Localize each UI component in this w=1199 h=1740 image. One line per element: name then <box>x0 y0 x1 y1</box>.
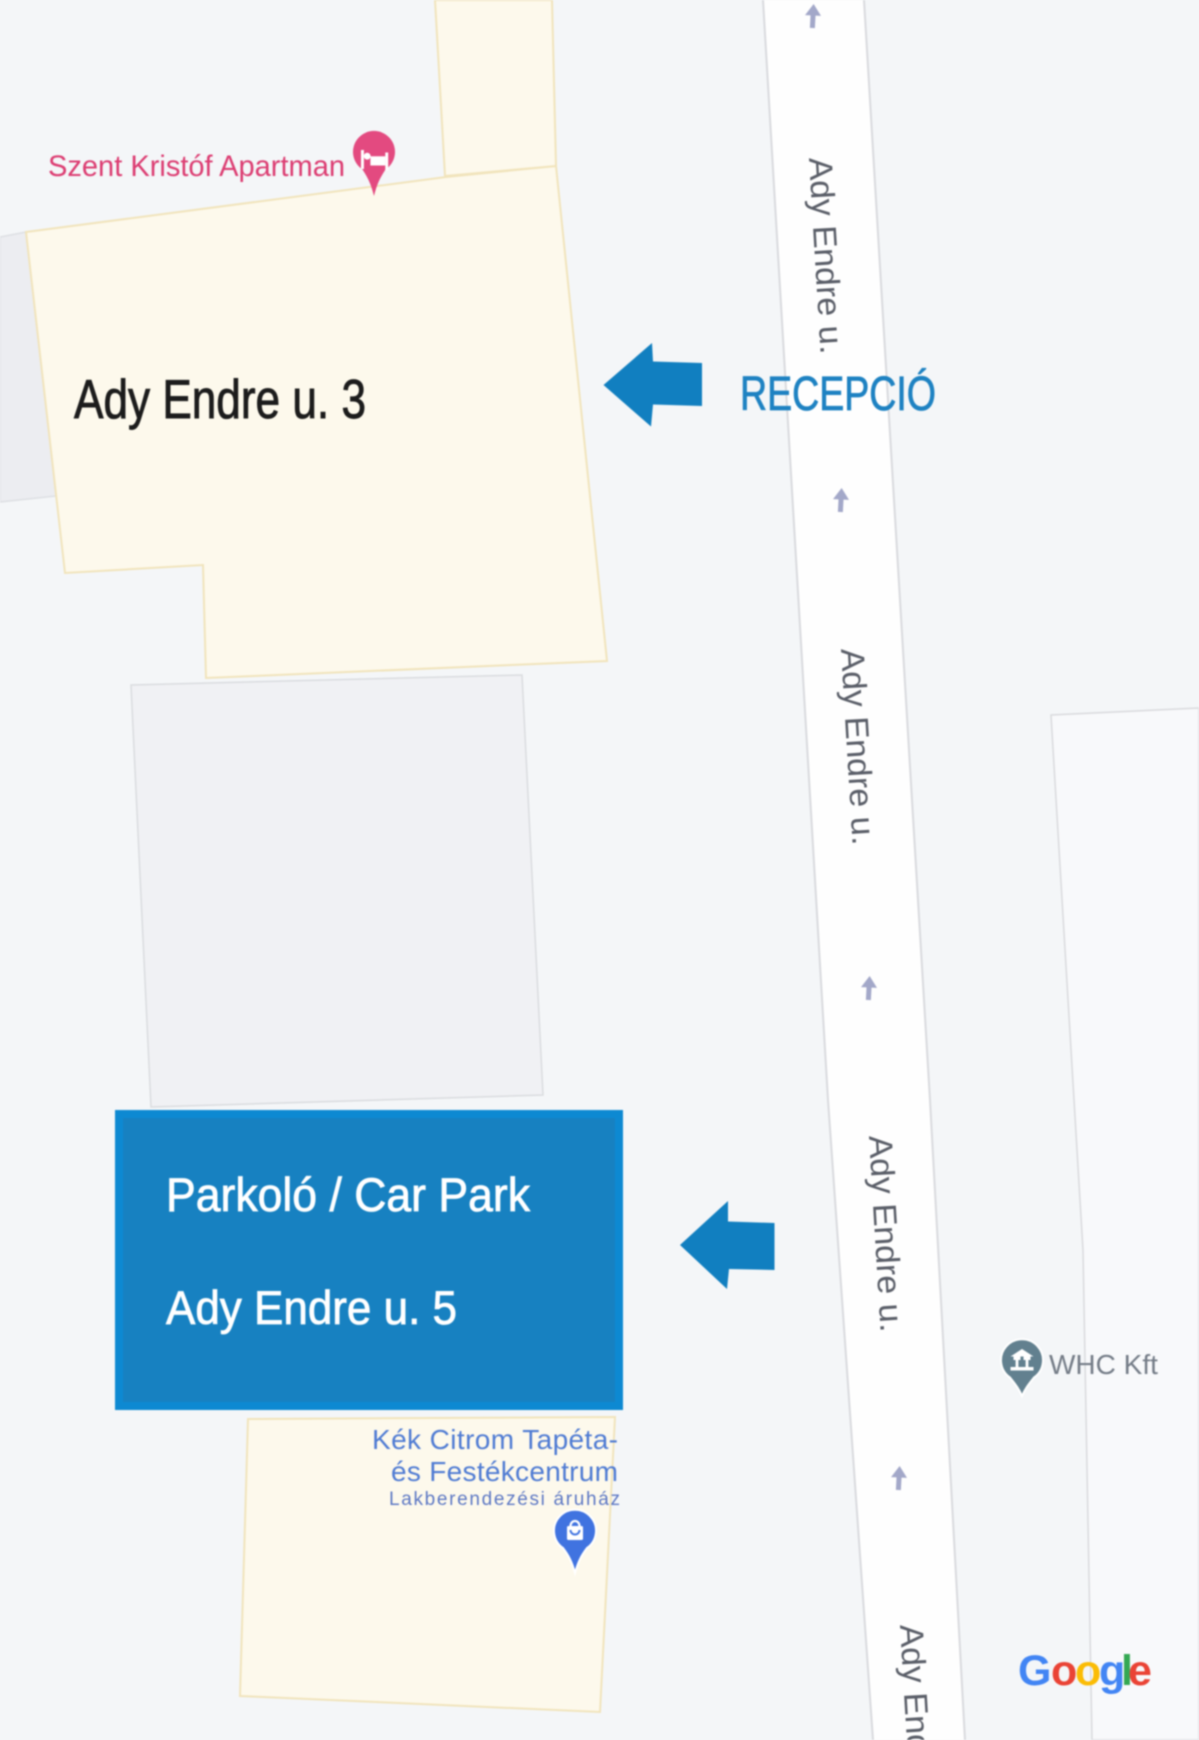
svg-text:és Festékcentrum: és Festékcentrum <box>391 1456 618 1487</box>
svg-text:Kék Citrom Tapéta-: Kék Citrom Tapéta- <box>372 1424 618 1455</box>
svg-text:Ady Endre u. 3: Ady Endre u. 3 <box>74 368 366 430</box>
svg-text:Parkoló / Car Park: Parkoló / Car Park <box>166 1168 530 1221</box>
svg-text:e: e <box>1128 1647 1152 1695</box>
svg-text:RECEPCIÓ: RECEPCIÓ <box>740 367 936 421</box>
svg-text:o: o <box>1075 1647 1101 1695</box>
svg-text:Szent Kristóf Apartman: Szent Kristóf Apartman <box>48 150 345 183</box>
svg-text:WHC Kft: WHC Kft <box>1049 1349 1158 1380</box>
svg-text:G: G <box>1018 1647 1051 1695</box>
svg-text:o: o <box>1051 1647 1077 1695</box>
svg-text:Ady Endre u. 5: Ady Endre u. 5 <box>166 1281 457 1334</box>
